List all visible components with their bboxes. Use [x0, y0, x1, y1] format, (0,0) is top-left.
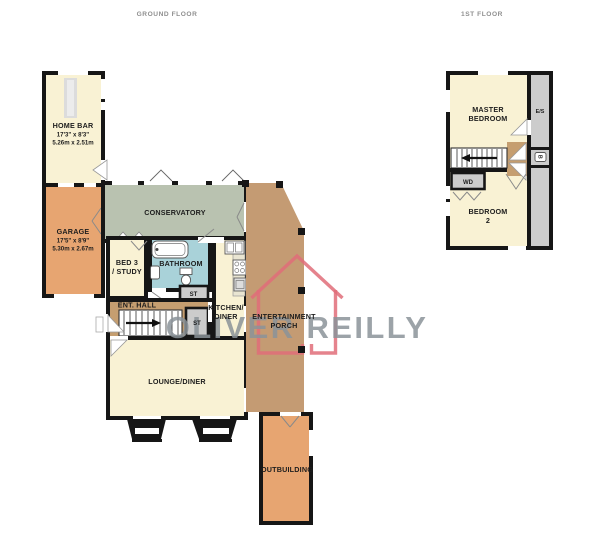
kitchen-label-2: DINER — [214, 312, 238, 321]
porch-label-2: PORCH — [271, 321, 298, 330]
partition-wall — [529, 147, 549, 150]
lounge-door-gap — [110, 336, 128, 340]
porch-label-1: ENTERTAINMENT — [252, 312, 316, 321]
bath-tap-icon — [156, 248, 159, 251]
partition-wall — [448, 168, 507, 172]
partition-wall — [529, 165, 549, 168]
window-vent-icon — [222, 170, 244, 181]
first-floor-title: 1ST FLOOR — [461, 11, 503, 18]
room-conservatory — [103, 170, 248, 241]
garage-label: GARAGE — [57, 227, 90, 236]
lounge-label: LOUNGE/DINER — [148, 377, 206, 386]
bed2-label-2: 2 — [486, 216, 490, 225]
garage-dims-ft: 17'5" x 8'9" — [57, 238, 90, 245]
master-label-2: BEDROOM — [469, 114, 508, 123]
outbuilding-label: OUTBUILDING — [261, 465, 313, 474]
bed3-label-2: / STUDY — [112, 267, 142, 276]
bathroom-door-gap — [152, 288, 166, 292]
bathroom-sink — [151, 266, 160, 279]
ensuite-label: E/S — [536, 109, 545, 115]
floorplan-canvas: GROUND FLOOR — [0, 0, 600, 558]
floorplan-page: GROUND FLOOR — [0, 0, 600, 558]
bay-window-2 — [192, 416, 237, 442]
bar-counter-top — [67, 80, 74, 116]
home-bar-dims-m: 5.26m x 2.51m — [52, 140, 94, 147]
hall-label: ENT. HALL — [118, 301, 157, 310]
home-bar-dims-ft: 17'3" x 8'3" — [57, 132, 90, 139]
conservatory-label: CONSERVATORY — [144, 208, 206, 217]
eaves-storage — [531, 168, 549, 246]
master-label-1: MASTER — [472, 105, 504, 114]
garage-dims-m: 5.30m x 2.67m — [52, 246, 94, 253]
window-vent-icon — [150, 170, 172, 181]
bed2-label-1: BEDROOM — [469, 207, 508, 216]
porch-area — [246, 183, 304, 412]
room-lounge — [108, 336, 248, 442]
boiler-icon: B — [535, 153, 546, 162]
kitchen-label-1: KITCHEN/ — [208, 303, 244, 312]
toilet-cistern — [180, 268, 192, 275]
wardrobe-label: WD — [463, 180, 474, 186]
front-step — [96, 317, 103, 332]
store1-label: ST — [190, 292, 198, 298]
store2-label: ST — [193, 321, 201, 327]
kitchen-conservatory-opening — [198, 237, 224, 243]
outbuilding-door-gap — [280, 412, 301, 416]
outbuilding-window — [309, 430, 313, 456]
conservatory-windows — [112, 170, 244, 185]
bed3-label-1: BED 3 — [116, 258, 138, 267]
front-door-gap — [104, 314, 108, 332]
svg-text:B: B — [536, 155, 542, 159]
bathroom-label: BATHROOM — [159, 259, 202, 268]
toilet-bowl — [181, 275, 190, 285]
home-bar-label: HOME BAR — [53, 121, 94, 130]
bay-window-1 — [127, 416, 166, 442]
room-porch — [246, 183, 304, 412]
ground-floor-title: GROUND FLOOR — [137, 11, 198, 18]
partition-wall — [527, 73, 531, 248]
ensuite-door-gap — [527, 120, 531, 135]
